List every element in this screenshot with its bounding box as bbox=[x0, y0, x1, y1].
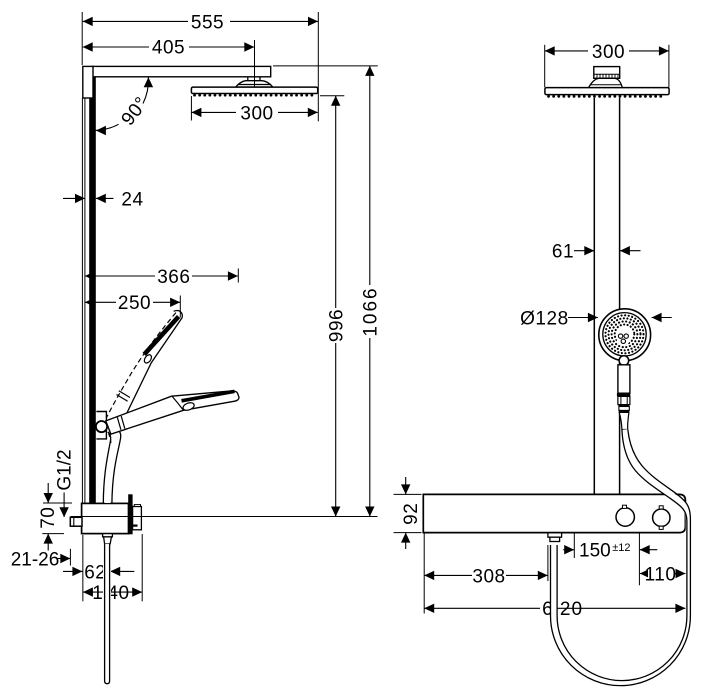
svg-text:996: 996 bbox=[327, 309, 348, 342]
svg-text:70: 70 bbox=[38, 507, 59, 529]
svg-text:366: 366 bbox=[157, 267, 190, 288]
svg-text:24: 24 bbox=[121, 189, 143, 210]
svg-text:555: 555 bbox=[191, 12, 224, 33]
svg-text:61: 61 bbox=[552, 242, 574, 263]
svg-text:21-26: 21-26 bbox=[11, 549, 60, 570]
svg-text:1: 1 bbox=[92, 583, 103, 604]
svg-text:405: 405 bbox=[152, 37, 185, 58]
svg-text:20: 20 bbox=[560, 599, 583, 620]
svg-text:Ø128: Ø128 bbox=[520, 308, 568, 329]
svg-text:300: 300 bbox=[592, 42, 625, 63]
svg-text:G1/2: G1/2 bbox=[54, 449, 75, 490]
svg-text:250: 250 bbox=[118, 293, 151, 314]
svg-text:1066: 1066 bbox=[361, 286, 382, 336]
svg-text:300: 300 bbox=[240, 103, 273, 124]
svg-text:92: 92 bbox=[401, 503, 422, 525]
svg-text:110: 110 bbox=[645, 564, 677, 585]
svg-text:308: 308 bbox=[472, 566, 505, 587]
